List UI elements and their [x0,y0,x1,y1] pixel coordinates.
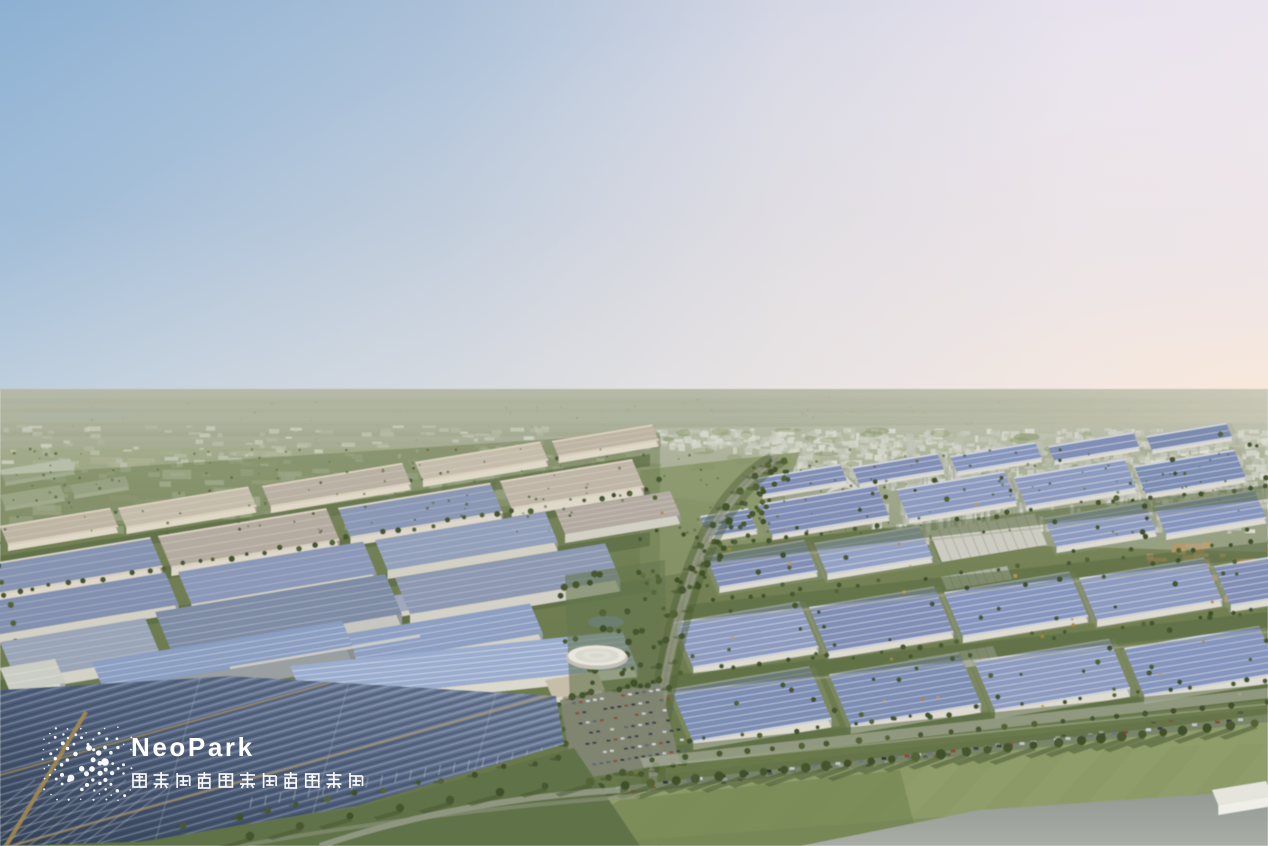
svg-text:NeoPark: NeoPark [131,732,255,762]
